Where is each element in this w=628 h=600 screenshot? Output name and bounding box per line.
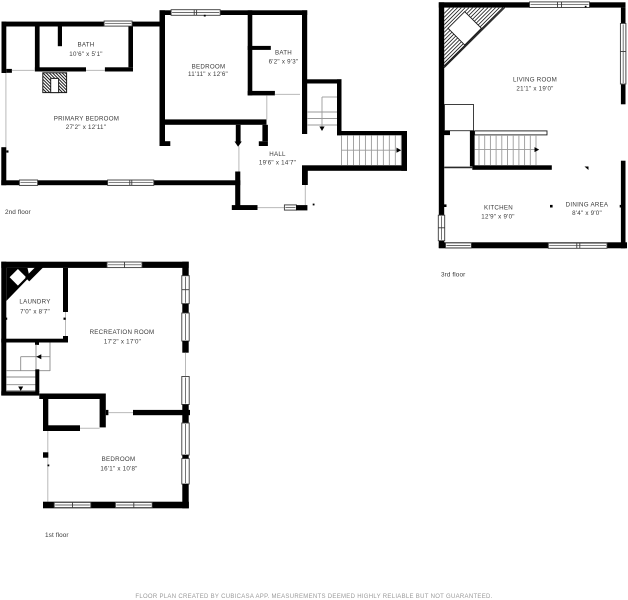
svg-text:11'11" x 12'6": 11'11" x 12'6": [188, 71, 228, 78]
svg-text:19'6" x 14'7": 19'6" x 14'7": [259, 159, 296, 166]
svg-text:3rd floor: 3rd floor: [441, 272, 466, 279]
svg-text:BEDROOM: BEDROOM: [102, 456, 136, 463]
svg-text:LAUNDRY: LAUNDRY: [19, 298, 50, 305]
svg-text:7'0" x 8'7": 7'0" x 8'7": [20, 308, 50, 315]
svg-text:BATH: BATH: [77, 41, 94, 48]
svg-text:RECREATION ROOM: RECREATION ROOM: [90, 329, 155, 336]
svg-text:BATH: BATH: [275, 49, 292, 56]
svg-text:1st floor: 1st floor: [45, 532, 69, 539]
svg-text:FLOOR PLAN CREATED BY CUBICASA: FLOOR PLAN CREATED BY CUBICASA APP. MEAS…: [135, 594, 492, 600]
svg-text:KITCHEN: KITCHEN: [484, 204, 513, 211]
svg-text:21'1" x 19'0": 21'1" x 19'0": [516, 85, 553, 92]
svg-text:DINING AREA: DINING AREA: [566, 201, 609, 208]
svg-text:LIVING ROOM: LIVING ROOM: [513, 76, 557, 83]
svg-text:8'4" x 9'0": 8'4" x 9'0": [572, 210, 602, 217]
svg-text:6'2" x 9'3": 6'2" x 9'3": [269, 58, 299, 65]
svg-text:17'2" x 17'0": 17'2" x 17'0": [104, 338, 141, 345]
svg-text:HALL: HALL: [269, 151, 286, 158]
svg-text:2nd floor: 2nd floor: [5, 209, 32, 216]
svg-text:10'6" x 5'1": 10'6" x 5'1": [69, 51, 103, 58]
svg-text:12'9" x 9'0": 12'9" x 9'0": [481, 213, 515, 220]
svg-text:PRIMARY BEDROOM: PRIMARY BEDROOM: [54, 115, 119, 122]
svg-text:16'1" x 10'8": 16'1" x 10'8": [100, 465, 137, 472]
svg-text:BEDROOM: BEDROOM: [192, 63, 226, 70]
svg-text:27'2" x 12'11": 27'2" x 12'11": [66, 124, 106, 131]
